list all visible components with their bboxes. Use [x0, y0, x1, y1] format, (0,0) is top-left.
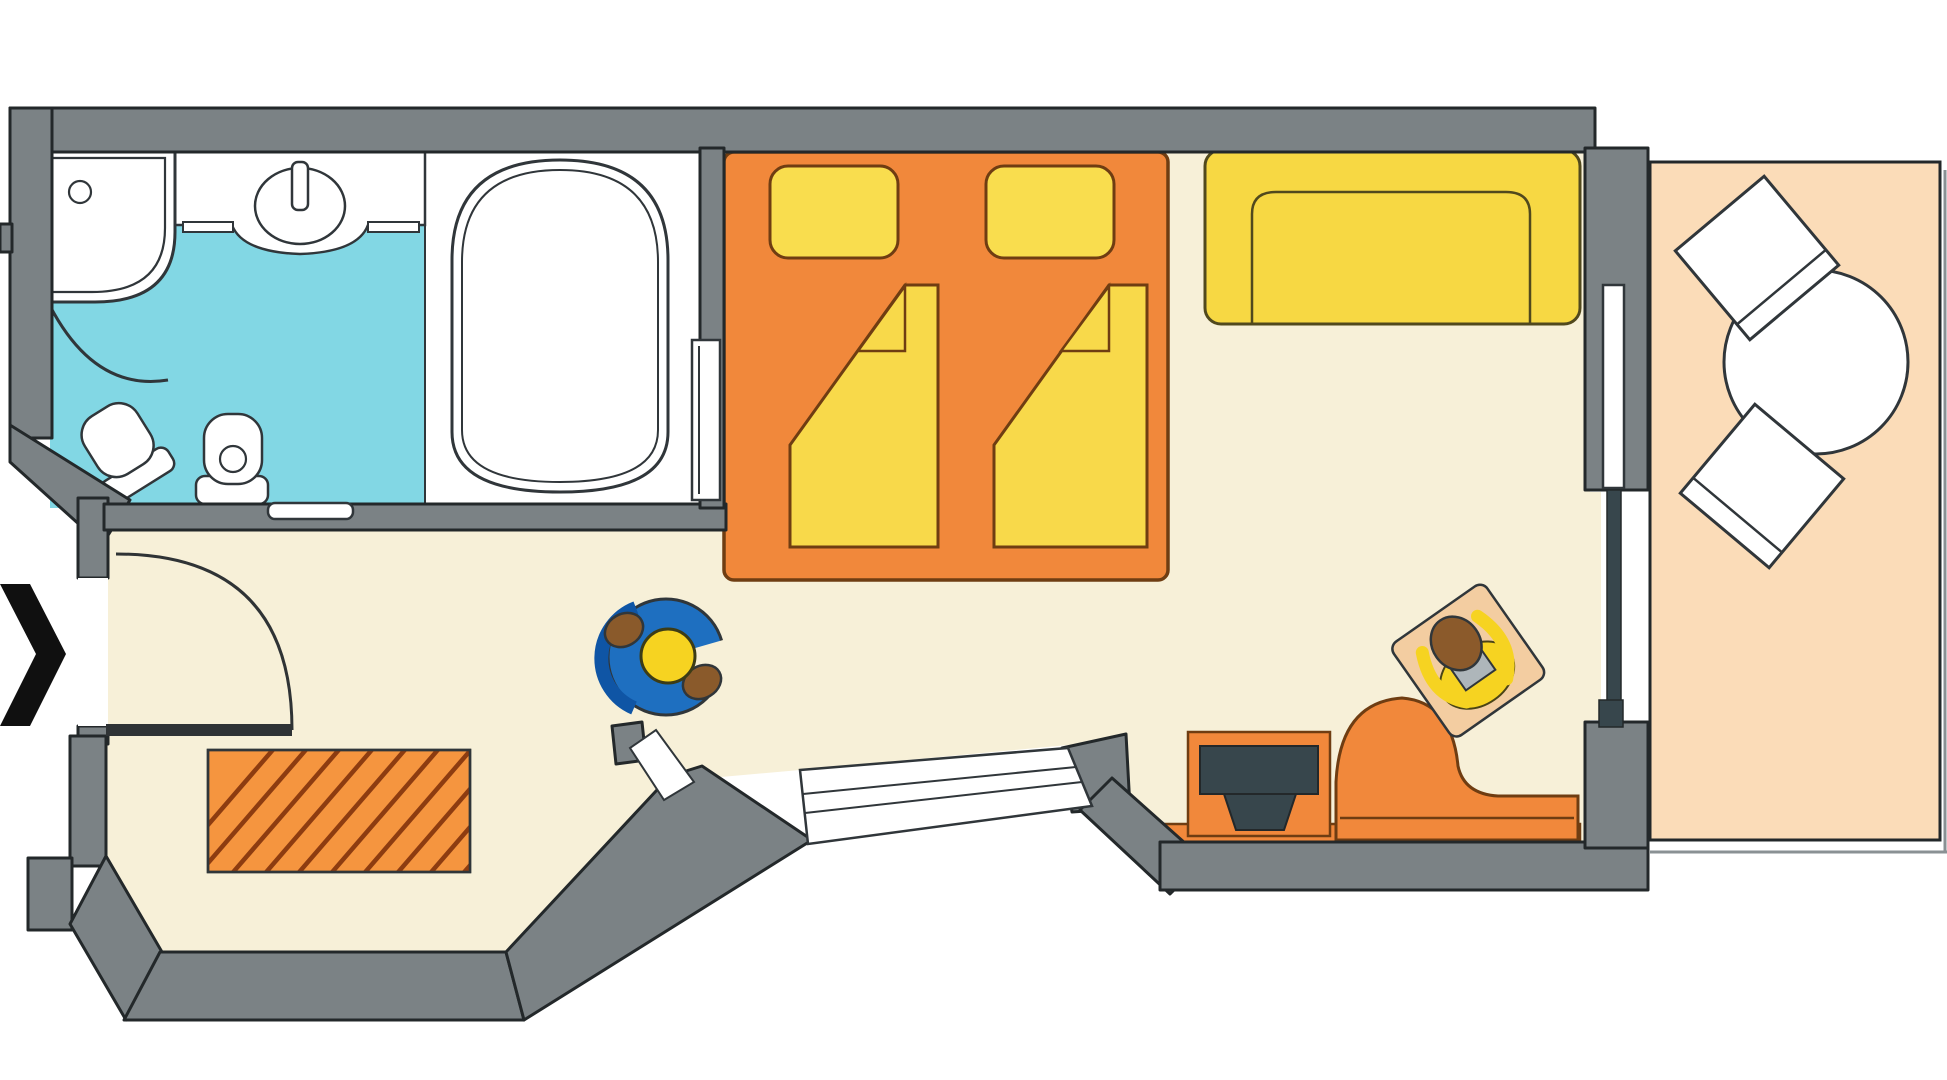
- floor-plan-page: [0, 0, 1947, 1080]
- entrance-door-leaf: [106, 724, 292, 736]
- sitting-person-head: [641, 629, 695, 683]
- bathtub: [452, 160, 668, 492]
- wall-top: [10, 108, 1595, 152]
- wall-bay-protrusion: [28, 858, 72, 930]
- bathroom-wall-shelf: [268, 503, 353, 519]
- shower-drain: [69, 181, 91, 203]
- entrance-arrow: [0, 584, 66, 726]
- tv-screen: [1200, 746, 1318, 794]
- sofa: [1205, 150, 1580, 324]
- tv-stand-base: [1224, 794, 1296, 830]
- entrance-door-opening: [78, 578, 108, 726]
- wall-exterior-nub: [0, 224, 12, 252]
- balcony-door-opening-floor: [1583, 492, 1601, 720]
- sofa-body: [1205, 150, 1580, 324]
- wall-bay-bottom: [124, 952, 524, 1020]
- wall-right-lower: [1585, 722, 1648, 848]
- pillow-right: [986, 166, 1114, 258]
- balcony-door-jamb: [1599, 700, 1623, 727]
- counter-ledge-right: [368, 222, 419, 232]
- balcony-door-sliding-panel: [1607, 490, 1621, 702]
- double-bed: [724, 152, 1168, 580]
- counter-ledge-left: [183, 222, 233, 232]
- wall-nook-bottom: [1160, 842, 1648, 890]
- balcony-door-fixed-panel: [1603, 285, 1624, 488]
- toilet: [196, 414, 268, 504]
- bathroom: [40, 148, 700, 508]
- wall-bathroom-bottom: [104, 504, 726, 530]
- toilet-bowl-ring: [220, 446, 246, 472]
- bathroom-sliding-door: [692, 340, 720, 500]
- wall-bay-left: [70, 736, 106, 866]
- bathtub-inner: [462, 170, 658, 482]
- pillow-left: [770, 166, 898, 258]
- basin-tap: [292, 162, 308, 210]
- floor-plan-canvas: [0, 0, 1947, 1080]
- balcony: [1650, 162, 1947, 852]
- wall-left-upper: [10, 108, 52, 438]
- shower-tray: [50, 158, 165, 292]
